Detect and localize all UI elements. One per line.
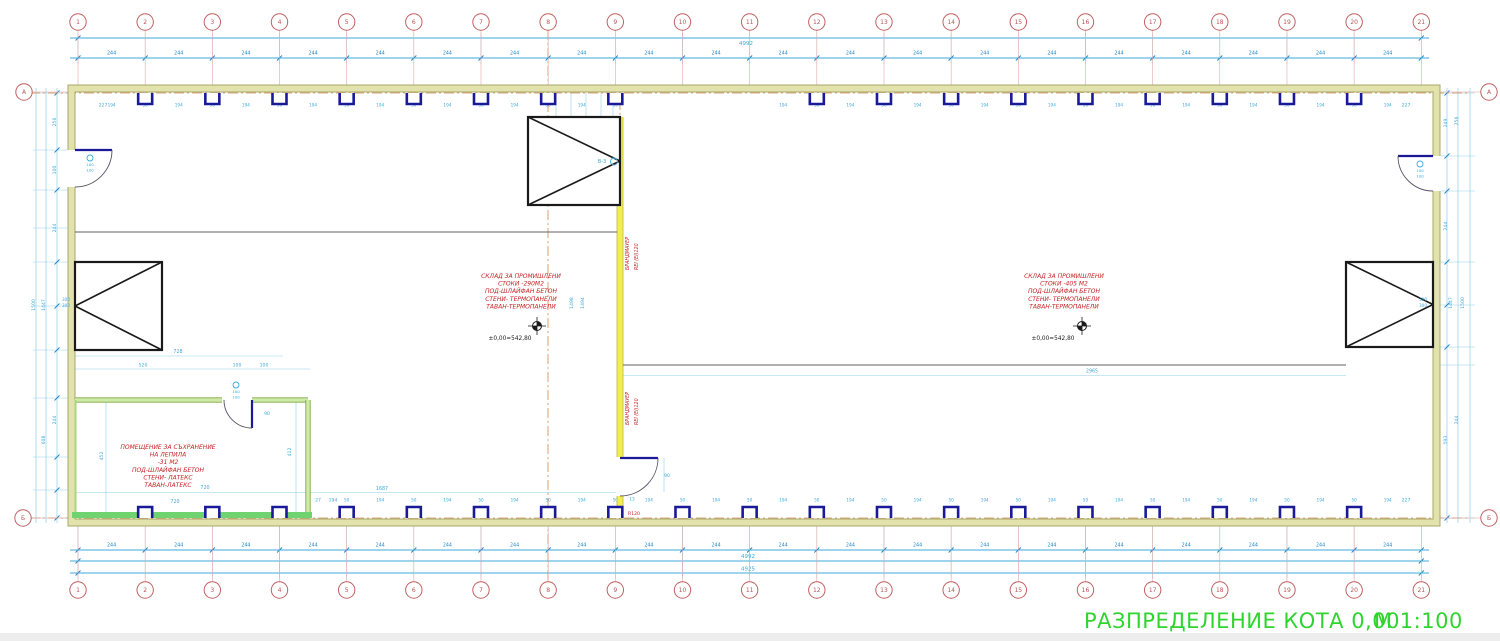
bay-dim: 244 — [980, 543, 989, 549]
grid-bottom-16-label: 16 — [1082, 587, 1090, 594]
grid-top-18-label: 18 — [1216, 19, 1224, 26]
column-bottom — [272, 507, 286, 518]
grid-top-16-label: 16 — [1082, 19, 1090, 26]
gate-left-label: 300 — [62, 297, 70, 302]
paper-background — [0, 0, 1500, 641]
storage-room-label: ПОД-ШЛАЙФАН БЕТОН — [132, 467, 205, 474]
gap-dim: 194 — [1048, 103, 1056, 108]
misc-dim: 520 — [139, 363, 148, 369]
gap-dim: 194 — [443, 103, 451, 108]
bay-dim: 244 — [846, 543, 855, 549]
gap-dim: 194 — [846, 498, 854, 503]
door-opening — [1432, 156, 1441, 191]
misc-dim: 13 — [629, 497, 635, 502]
grid-bottom-9-label: 9 — [613, 587, 617, 594]
gap-dim: 194 — [1182, 103, 1190, 108]
misc-dim: 4925 — [741, 567, 755, 573]
grid-top-11-label: 11 — [746, 19, 754, 26]
grid-top-21-label: 21 — [1417, 19, 1425, 26]
column-top — [340, 93, 354, 104]
bay-dim: 244 — [376, 51, 385, 57]
grid-top-5-label: 5 — [345, 19, 349, 26]
door-label: 100 — [1416, 168, 1424, 173]
floor-plan: 2442442442442442442442442442442442442442… — [0, 0, 1500, 641]
misc-dim: 593 — [1443, 436, 1449, 445]
row-left-bottom-label: Б — [21, 515, 25, 522]
gap-dim: 194 — [309, 103, 317, 108]
misc-dim: 227 — [1402, 498, 1411, 504]
misc-dim: 249 — [1443, 119, 1449, 128]
bay-dim: 244 — [846, 51, 855, 57]
misc-dim: 244 — [52, 416, 58, 425]
grid-top-19-label: 19 — [1283, 19, 1291, 26]
grid-top-20-label: 20 — [1350, 19, 1358, 26]
bay-dim: 244 — [779, 543, 788, 549]
door-label: 100 — [232, 395, 240, 400]
door-label: 100 — [86, 168, 94, 173]
warehouse-right-level: ±0,00=542,80 — [1032, 336, 1075, 342]
bay-dim: 244 — [577, 543, 586, 549]
column-top — [1011, 93, 1025, 104]
warehouse-right-label: ПОД-ШЛАЙФАН БЕТОН — [1028, 288, 1101, 295]
warehouse-left-label: ПОД-ШЛАЙФАН БЕТОН — [485, 288, 558, 295]
misc-dim: R120 — [628, 511, 640, 517]
gate-left — [75, 262, 162, 350]
bay-dim: 244 — [644, 543, 653, 549]
misc-dim: 227 — [1402, 103, 1411, 109]
grid-bottom-14-label: 14 — [947, 587, 955, 594]
bay-dim: 244 — [107, 543, 116, 549]
bay-dim: 244 — [577, 51, 586, 57]
bay-dim: 244 — [1182, 543, 1191, 549]
grid-bottom-3-label: 3 — [210, 587, 214, 594]
bay-dim: 244 — [1316, 543, 1325, 549]
gate-right-label: 300 — [1419, 297, 1427, 302]
gap-dim: 194 — [712, 498, 720, 503]
grid-bottom-4-label: 4 — [278, 587, 282, 594]
grid-top-1-label: 1 — [76, 19, 80, 26]
column-bottom — [743, 507, 757, 518]
gap-dim: 194 — [779, 498, 787, 503]
grid-top-13-label: 13 — [880, 19, 888, 26]
gap-dim: 194 — [578, 498, 586, 503]
column-top — [1280, 93, 1294, 104]
door-label: 100 — [232, 389, 240, 394]
col-dim: 50 — [1083, 498, 1089, 503]
col-dim: 50 — [1284, 498, 1290, 503]
bay-dim: 244 — [107, 51, 116, 57]
column-top — [407, 93, 421, 104]
bay-dim: 244 — [913, 543, 922, 549]
column-top — [541, 93, 555, 104]
grid-top-4-label: 4 — [278, 19, 282, 26]
bay-dim: 244 — [1316, 51, 1325, 57]
bay-dim: 244 — [1047, 543, 1056, 549]
column-top — [272, 93, 286, 104]
gap-dim: 194 — [1249, 103, 1257, 108]
grid-bottom-20-label: 20 — [1350, 587, 1358, 594]
bay-dim: 244 — [779, 51, 788, 57]
warehouse-right-label: СТЕНИ- ТЕРМОПАНЕЛИ — [1028, 296, 1100, 303]
column-top — [138, 93, 152, 104]
gap-dim: 194 — [846, 103, 854, 108]
bay-dim: 244 — [1383, 51, 1392, 57]
warehouse-left-label: СКЛАД ЗА ПРОМИШЛЕНИ — [481, 273, 561, 280]
column-bottom — [608, 507, 622, 518]
bay-dim: 244 — [711, 51, 720, 57]
misc-dim: 608 — [41, 436, 47, 445]
grid-top-8-label: 8 — [546, 19, 550, 26]
warehouse-right-label: ТАВАН-ТЕРМОПАНЕЛИ — [1029, 303, 1099, 310]
grid-bottom-10-label: 10 — [679, 587, 687, 594]
bay-dim: 244 — [174, 543, 183, 549]
gap-dim: 194 — [443, 498, 451, 503]
bay-dim: 244 — [644, 51, 653, 57]
misc-dim: 256 — [52, 118, 58, 127]
misc-dim: 720 — [200, 485, 209, 491]
gap-dim: 194 — [1317, 103, 1325, 108]
bay-dim: 244 — [1182, 51, 1191, 57]
misc-dim: 244 — [1443, 222, 1449, 231]
bay-dim: 244 — [913, 51, 922, 57]
storage-room-label: ПОМЕЩЕНИЕ ЗА СЪХРАНЕНИЕ — [120, 444, 215, 451]
bay-dim: 244 — [308, 51, 317, 57]
column-bottom — [1280, 507, 1294, 518]
column-bottom — [407, 507, 421, 518]
misc-dim: 4992 — [739, 41, 753, 47]
bay-dim: 244 — [711, 543, 720, 549]
door-opening — [67, 150, 76, 187]
misc-dim: 100 — [233, 363, 242, 369]
column-top — [1213, 93, 1227, 104]
misc-dim: 244 — [1454, 416, 1460, 425]
column-bottom — [1078, 507, 1092, 518]
col-dim: 50 — [1150, 498, 1156, 503]
column-bottom — [541, 507, 555, 518]
column-top — [810, 93, 824, 104]
gap-dim: 194 — [1249, 498, 1257, 503]
gap-dim: 194 — [376, 498, 384, 503]
grid-bottom-12-label: 12 — [813, 587, 821, 594]
gap-dim: 194 — [511, 103, 519, 108]
misc-dim: 728 — [173, 349, 182, 355]
storage-room-label: НА ЛЕПИЛА — [150, 452, 186, 459]
gap-dim: 194 — [1048, 498, 1056, 503]
grid-bottom-8-label: 8 — [546, 587, 550, 594]
misc-dim: 27 — [315, 498, 321, 504]
door-opening — [616, 458, 624, 496]
misc-dim: 90 — [264, 411, 270, 417]
gap-dim: 194 — [1384, 103, 1392, 108]
col-dim: 50 — [680, 498, 686, 503]
bay-dim: 244 — [1114, 51, 1123, 57]
grid-bottom-13-label: 13 — [880, 587, 888, 594]
misc-dim: 194 — [329, 498, 338, 504]
gap-dim: 194 — [108, 103, 116, 108]
bay-dim: 244 — [443, 543, 452, 549]
bay-dim: 244 — [1249, 543, 1258, 549]
col-dim: 50 — [1217, 498, 1223, 503]
column-top — [205, 93, 219, 104]
grid-bottom-18-label: 18 — [1216, 587, 1224, 594]
gate-left-label: 300 — [62, 303, 70, 308]
warehouse-right-label: СКЛАД ЗА ПРОМИШЛЕНИ — [1024, 273, 1104, 280]
bay-dim: 244 — [308, 543, 317, 549]
misc-dim: 1500 — [1460, 297, 1466, 309]
col-dim: 50 — [747, 498, 753, 503]
bay-dim: 244 — [1114, 543, 1123, 549]
grid-top-9-label: 9 — [613, 19, 617, 26]
misc-dim: 1494 — [580, 297, 586, 309]
column-top — [1146, 93, 1160, 104]
column-top — [944, 93, 958, 104]
col-dim: 50 — [1351, 498, 1357, 503]
column-top — [1347, 93, 1361, 104]
door-label: 100 — [1416, 174, 1424, 179]
gap-dim: 194 — [645, 498, 653, 503]
grid-bottom-15-label: 15 — [1014, 587, 1022, 594]
bay-dim: 244 — [174, 51, 183, 57]
column-top — [474, 93, 488, 104]
misc-dim: 452 — [99, 452, 105, 461]
storage-room-label: СТЕНИ- ЛАТЕКС — [143, 474, 193, 481]
col-dim: 50 — [344, 498, 350, 503]
misc-dim: 1498 — [569, 297, 575, 309]
grid-bottom-1-label: 1 — [76, 587, 80, 594]
misc-dim: 100 — [52, 166, 58, 175]
misc-dim: 4992 — [741, 554, 755, 560]
bay-dim: 244 — [980, 51, 989, 57]
col-dim: 50 — [411, 498, 417, 503]
grid-bottom-21-label: 21 — [1417, 587, 1425, 594]
column-bottom — [944, 507, 958, 518]
col-dim: 50 — [881, 498, 887, 503]
col-dim: 50 — [948, 498, 954, 503]
col-dim: 50 — [814, 498, 820, 503]
column-bottom — [877, 507, 891, 518]
column-top — [877, 93, 891, 104]
grid-bottom-11-label: 11 — [746, 587, 754, 594]
gap-dim: 194 — [1115, 103, 1123, 108]
grid-bottom-19-label: 19 — [1283, 587, 1291, 594]
column-bottom — [1146, 507, 1160, 518]
bay-dim: 244 — [443, 51, 452, 57]
grid-top-15-label: 15 — [1014, 19, 1022, 26]
gap-dim: 194 — [1384, 498, 1392, 503]
storage-room-label: -31 М2 — [158, 459, 179, 466]
misc-dim: 1447 — [1448, 297, 1454, 309]
column-bottom — [1347, 507, 1361, 518]
bottom-strip — [0, 633, 1500, 641]
misc-dim: 227 — [99, 103, 108, 109]
misc-dim: 244 — [52, 224, 58, 233]
misc-dim: 1447 — [41, 299, 47, 311]
bay-dim: 244 — [241, 51, 250, 57]
door-label: 100 — [86, 162, 94, 167]
grid-bottom-7-label: 7 — [479, 587, 483, 594]
column-bottom — [474, 507, 488, 518]
storage-room-label: ТАВАН-ЛАТЕКС — [144, 482, 192, 489]
misc-dim: 1500 — [31, 299, 37, 311]
grid-bottom-2-label: 2 — [143, 587, 147, 594]
grid-top-3-label: 3 — [210, 19, 214, 26]
drawing-title: РАЗПРЕДЕЛЕНИЕ КОТА 0,00 — [1084, 609, 1400, 633]
misc-dim: 720 — [170, 499, 179, 505]
col-dim: 50 — [478, 498, 484, 503]
warehouse-left-label: ТАВАН-ТЕРМОПАНЕЛИ — [486, 303, 556, 310]
column-bottom — [340, 507, 354, 518]
gap-dim: 194 — [511, 498, 519, 503]
column-top — [608, 93, 622, 104]
misc-dim: 90 — [664, 473, 670, 479]
bay-dim: 244 — [510, 51, 519, 57]
bay-dim: 244 — [510, 543, 519, 549]
column-top — [1078, 93, 1092, 104]
column-bottom — [1011, 507, 1025, 518]
misc-dim: 100 — [260, 363, 269, 369]
warehouse-left-level: ±0,00=542,80 — [489, 336, 532, 342]
grid-top-12-label: 12 — [813, 19, 821, 26]
column-bottom — [138, 507, 152, 518]
grid-top-2-label: 2 — [143, 19, 147, 26]
grid-top-6-label: 6 — [412, 19, 416, 26]
warehouse-left-label: СТЕНИ- ТЕРМОПАНЕЛИ — [485, 296, 557, 303]
bay-dim: 244 — [1383, 543, 1392, 549]
gap-dim: 194 — [376, 103, 384, 108]
gap-dim: 194 — [175, 103, 183, 108]
column-bottom — [1213, 507, 1227, 518]
gap-dim: 194 — [981, 103, 989, 108]
row-right-bottom-label: Б — [1487, 515, 1491, 522]
gap-dim: 194 — [1317, 498, 1325, 503]
misc-dim: 256 — [1454, 117, 1460, 126]
bay-dim: 244 — [1249, 51, 1258, 57]
warehouse-left-label: СТОКИ -290М2 — [498, 281, 544, 288]
misc-dim: 412 — [287, 448, 293, 457]
grid-bottom-6-label: 6 — [412, 587, 416, 594]
bay-dim: 244 — [241, 543, 250, 549]
grid-top-14-label: 14 — [947, 19, 955, 26]
gap-dim: 194 — [578, 103, 586, 108]
column-bottom — [675, 507, 689, 518]
grid-top-10-label: 10 — [679, 19, 687, 26]
warehouse-right-label: СТОКИ -405 М2 — [1040, 281, 1088, 288]
misc-dim: 1687 — [376, 486, 388, 492]
column-bottom — [810, 507, 824, 518]
misc-dim: 2965 — [1086, 369, 1098, 375]
gap-dim: 194 — [914, 103, 922, 108]
bay-dim: 244 — [376, 543, 385, 549]
gate-top-label: В-3 — [598, 159, 606, 165]
gate-right-label: 300 — [1419, 303, 1427, 308]
col-dim: 50 — [1016, 498, 1022, 503]
gap-dim: 194 — [242, 103, 250, 108]
gap-dim: 194 — [981, 498, 989, 503]
grid-bottom-5-label: 5 — [345, 587, 349, 594]
bay-dim: 244 — [1047, 51, 1056, 57]
gap-dim: 194 — [779, 103, 787, 108]
gap-dim: 194 — [1115, 498, 1123, 503]
grid-bottom-17-label: 17 — [1149, 587, 1157, 594]
grid-top-17-label: 17 — [1149, 19, 1157, 26]
grid-top-7-label: 7 — [479, 19, 483, 26]
gap-dim: 194 — [1182, 498, 1190, 503]
column-bottom — [205, 507, 219, 518]
gap-dim: 194 — [914, 498, 922, 503]
drawing-scale: М 1:100 — [1374, 609, 1463, 633]
